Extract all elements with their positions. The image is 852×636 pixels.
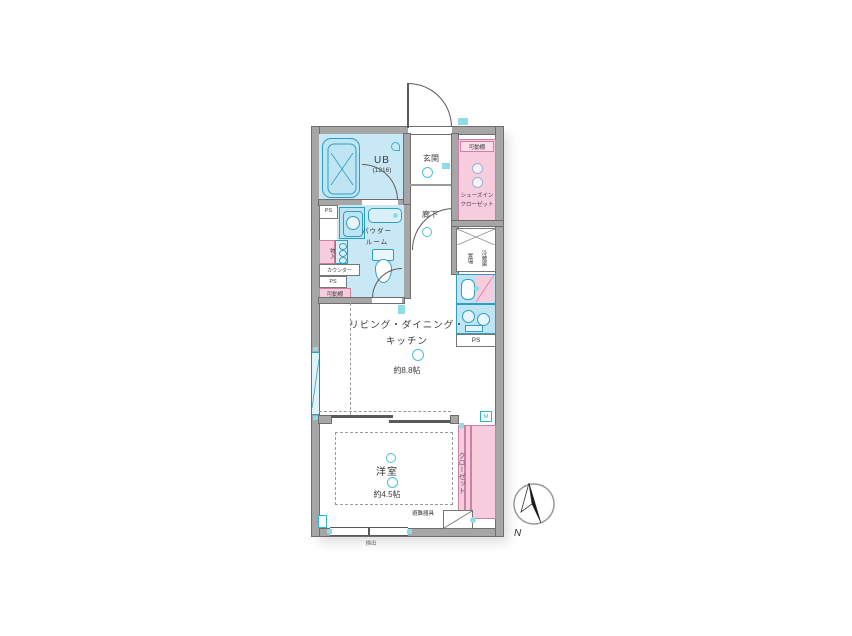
intercom-icon	[442, 163, 450, 169]
shelf-item-icon	[339, 250, 347, 257]
compass: N	[506, 476, 564, 540]
shelf-unit	[335, 240, 348, 264]
entrance-door-arc	[408, 83, 452, 127]
bathtub	[322, 138, 360, 198]
wall-left	[312, 127, 319, 536]
shelf-item-icon	[339, 243, 347, 250]
powder-room-label-2: ルーム	[352, 236, 402, 246]
window-mark	[313, 347, 318, 351]
wall-sic-bottom	[452, 221, 503, 226]
refrigerator-brace-icon	[457, 229, 495, 245]
ldk-label-1: リビング・ダイニング・	[320, 317, 494, 331]
shower-icon	[391, 142, 400, 151]
western-room-label: 洋室	[337, 463, 437, 478]
meter-label: M	[480, 414, 492, 420]
storage-box: 物入	[319, 240, 335, 264]
powder-door-opening	[372, 298, 402, 303]
refrigerator-label-1: 冷蔵庫	[480, 246, 486, 270]
sic-shelf-label: 可動棚	[460, 143, 494, 151]
closet-mark	[459, 423, 464, 428]
sliding-door-panel	[331, 415, 393, 418]
window-diagonal-icon	[312, 353, 319, 414]
hatch-mark	[470, 517, 476, 523]
counter-label: カウンター	[319, 267, 360, 274]
western-room-size: 約4.5帖	[337, 489, 437, 500]
doorbell-icon	[458, 118, 468, 125]
sliding-door-panel	[389, 420, 451, 423]
hanger-icon	[472, 177, 483, 188]
sink-bowl	[461, 279, 475, 300]
sic-label-1: シューズイン	[458, 191, 496, 199]
powder-room-label-1: パウダー	[352, 225, 402, 235]
closet-pipe	[470, 425, 472, 519]
sic-label-2: クローゼット	[458, 200, 496, 208]
wall-powder-hall	[404, 205, 410, 298]
vanity	[368, 208, 402, 223]
ldk-label-2: キッチン	[320, 333, 494, 347]
pipe-space-1-label: PS	[319, 208, 338, 214]
ceiling-light-icon	[422, 167, 433, 178]
ceiling-light-icon	[387, 477, 398, 488]
wall-ub-genkan	[404, 134, 410, 205]
wall-stub-left	[319, 416, 331, 423]
ldk-size: 約8.8帖	[320, 365, 494, 376]
movable-shelf-label: 可動棚	[319, 290, 351, 298]
meter-box-left	[318, 515, 327, 528]
compass-north-label: N	[514, 528, 522, 539]
floor-plan: UB (1216) 玄関 廊下 可動棚 シューズイン クローゼット 冷蔵庫 置場	[312, 127, 503, 536]
window-mark	[407, 529, 412, 534]
refrigerator-label-2: 置場	[466, 249, 472, 267]
window-center-tick	[368, 527, 370, 536]
sweep-window-label: 掃出	[356, 539, 386, 547]
shelf-item-icon	[339, 257, 347, 264]
wall-right	[496, 127, 503, 536]
escape-equipment-label: 避難器具	[404, 509, 442, 517]
entrance-opening	[408, 127, 452, 134]
vanity-faucet-icon	[393, 213, 398, 218]
water-heater-icon	[398, 305, 405, 314]
refrigerator-space	[456, 228, 496, 272]
genkan-step-line	[410, 184, 452, 186]
escape-hatch	[443, 510, 473, 529]
ldk-dashline	[319, 411, 451, 412]
kitchen-sink-unit	[456, 274, 496, 304]
bathtub-x-icon	[323, 139, 361, 199]
side-window	[312, 352, 319, 415]
ceiling-light-icon	[386, 453, 396, 463]
faucet-icon	[474, 286, 479, 291]
hanger-icon	[472, 163, 483, 174]
pipe-space-2-label: PS	[319, 279, 347, 285]
hatch-diagonal-icon	[444, 511, 472, 528]
window-mark	[313, 416, 318, 420]
wall-stub-right	[451, 416, 458, 423]
ceiling-light-icon	[412, 349, 424, 361]
window-mark	[327, 529, 332, 534]
closet-label: クローゼット	[458, 435, 465, 511]
